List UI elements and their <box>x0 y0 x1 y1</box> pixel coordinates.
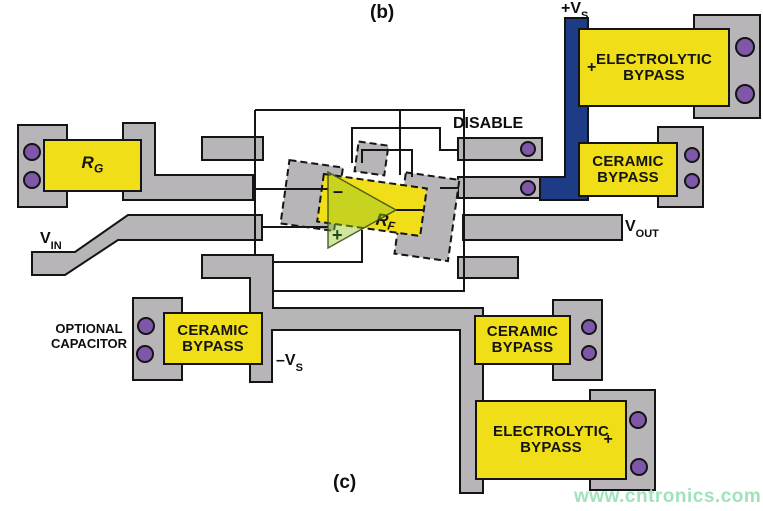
polarity-plus: + <box>587 60 597 76</box>
via <box>23 171 41 189</box>
pcb-layout-diagram: RG + ELECTROLYTIC BYPASS CERAMIC BYPASS … <box>0 0 763 511</box>
resistor-rf <box>317 174 427 236</box>
watermark: www.cntronics.com <box>574 486 761 508</box>
footprint-pad-left <box>281 160 343 231</box>
panel-label-b: (b) <box>370 2 394 24</box>
wire-inner-loop <box>362 150 412 177</box>
capacitor-top-ceramic: CERAMIC BYPASS <box>578 142 678 197</box>
via <box>735 37 755 57</box>
note-line: CAPACITOR <box>47 336 131 351</box>
via <box>520 180 536 196</box>
component-label: BYPASS <box>597 170 659 186</box>
component-label: BYPASS <box>182 339 244 355</box>
component-label: ELECTROLYTIC <box>493 424 609 440</box>
component-label: BYPASS <box>520 440 582 456</box>
net-label-vout: VOUT <box>625 218 659 238</box>
pad-output-bar <box>458 257 518 278</box>
opamp-plus-sign: + <box>332 225 343 245</box>
via <box>630 458 648 476</box>
via <box>137 317 155 335</box>
schematic-wires <box>252 110 464 292</box>
polarity-plus: + <box>603 432 613 448</box>
via <box>581 345 597 361</box>
net-label-vin: VIN <box>40 230 62 250</box>
capacitor-top-electrolytic: + ELECTROLYTIC BYPASS <box>578 28 730 107</box>
resistor-rg: RG <box>43 139 142 192</box>
footprint-pad-top-tab <box>355 142 389 176</box>
wire-disable-1 <box>352 128 458 163</box>
panel-label-c: (c) <box>333 472 356 494</box>
opamp-triangle <box>328 172 396 248</box>
capacitor-bottom-ceramic: CERAMIC BYPASS <box>474 315 571 365</box>
trace-vin <box>32 215 262 275</box>
net-label-vs-minus: –VS <box>276 352 303 372</box>
via <box>23 143 41 161</box>
component-label: ELECTROLYTIC <box>596 52 712 68</box>
rg-label: RG <box>81 155 103 176</box>
opamp-minus-sign: – <box>333 181 343 201</box>
trace-rg <box>123 123 253 200</box>
net-label-disable: DISABLE <box>453 115 523 133</box>
via <box>520 141 536 157</box>
capacitor-optional-ceramic: CERAMIC BYPASS <box>163 312 263 365</box>
via <box>136 345 154 363</box>
via <box>629 411 647 429</box>
via <box>684 173 700 189</box>
capacitor-bottom-electrolytic: + ELECTROLYTIC BYPASS <box>475 400 627 480</box>
component-label: CERAMIC <box>177 323 248 339</box>
pad-nc-bar <box>202 137 263 160</box>
rf-label: RF <box>374 210 397 234</box>
net-label-vs-plus: +VS <box>561 0 588 20</box>
component-label: BYPASS <box>623 68 685 84</box>
trace-negative-supply <box>202 255 483 493</box>
wire-vminus-pin <box>273 230 362 262</box>
via <box>735 84 755 104</box>
component-label: BYPASS <box>492 340 554 356</box>
optional-capacitor-note: OPTIONAL CAPACITOR <box>47 321 131 351</box>
via <box>684 147 700 163</box>
wire-outer-loop <box>255 110 464 292</box>
component-label: CERAMIC <box>592 154 663 170</box>
trace-vout <box>463 215 622 240</box>
footprint-pad-right <box>394 172 459 261</box>
component-label: CERAMIC <box>487 324 558 340</box>
note-line: OPTIONAL <box>47 321 131 336</box>
via <box>581 319 597 335</box>
